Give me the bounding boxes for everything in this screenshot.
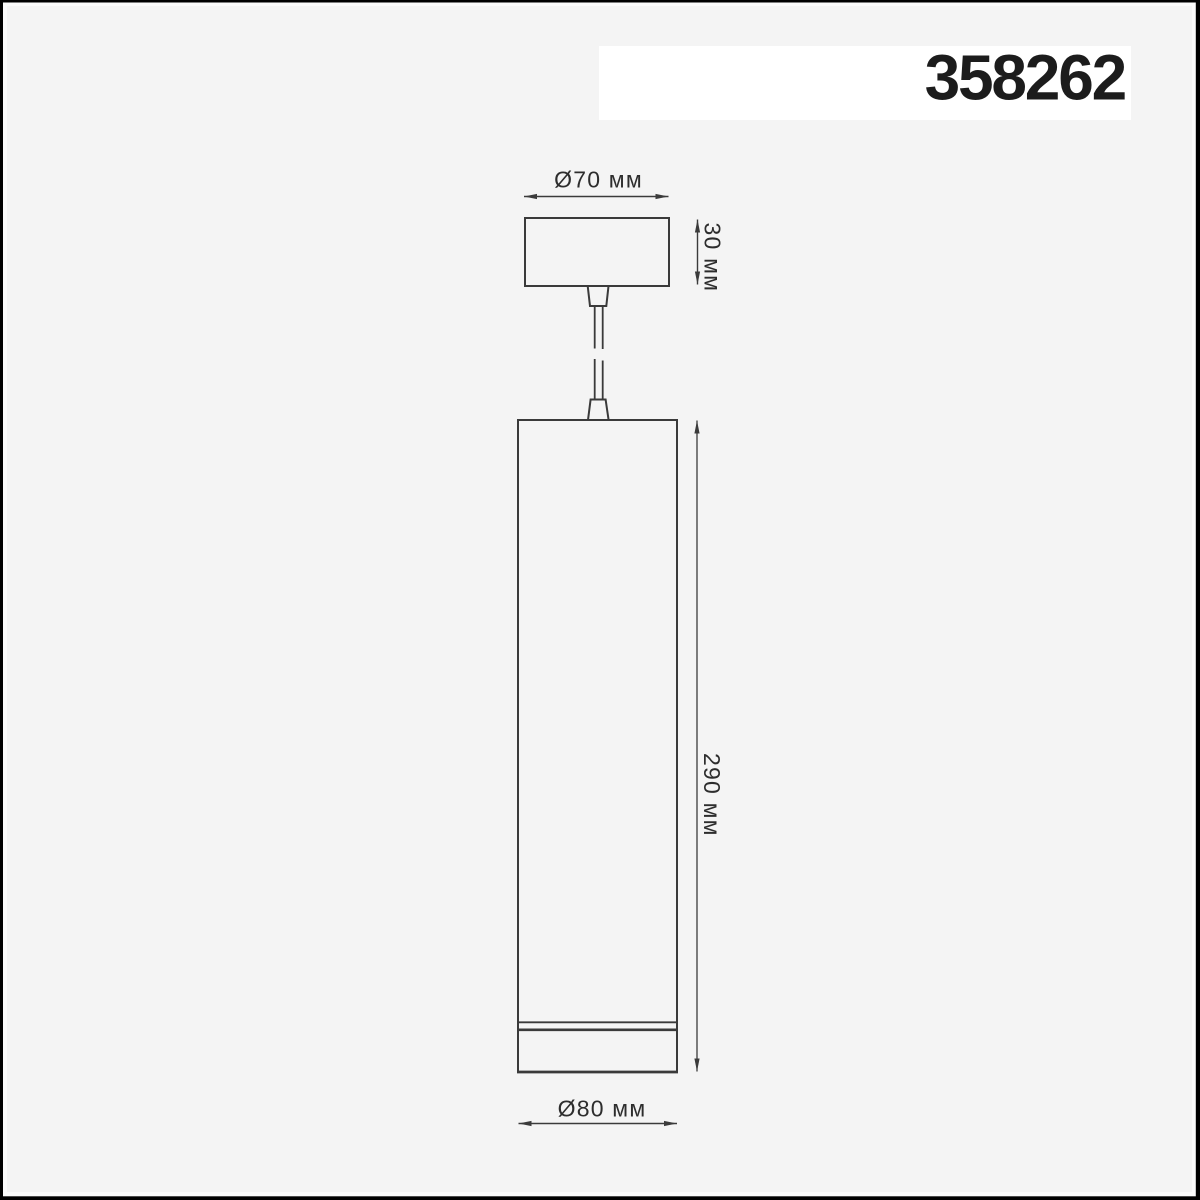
svg-text:30 мм: 30 мм <box>700 222 726 292</box>
svg-text:290 мм: 290 мм <box>699 753 725 837</box>
svg-text:Ø70 мм: Ø70 мм <box>554 167 643 193</box>
svg-text:Ø80 мм: Ø80 мм <box>558 1096 647 1122</box>
svg-text:358262: 358262 <box>925 42 1126 114</box>
